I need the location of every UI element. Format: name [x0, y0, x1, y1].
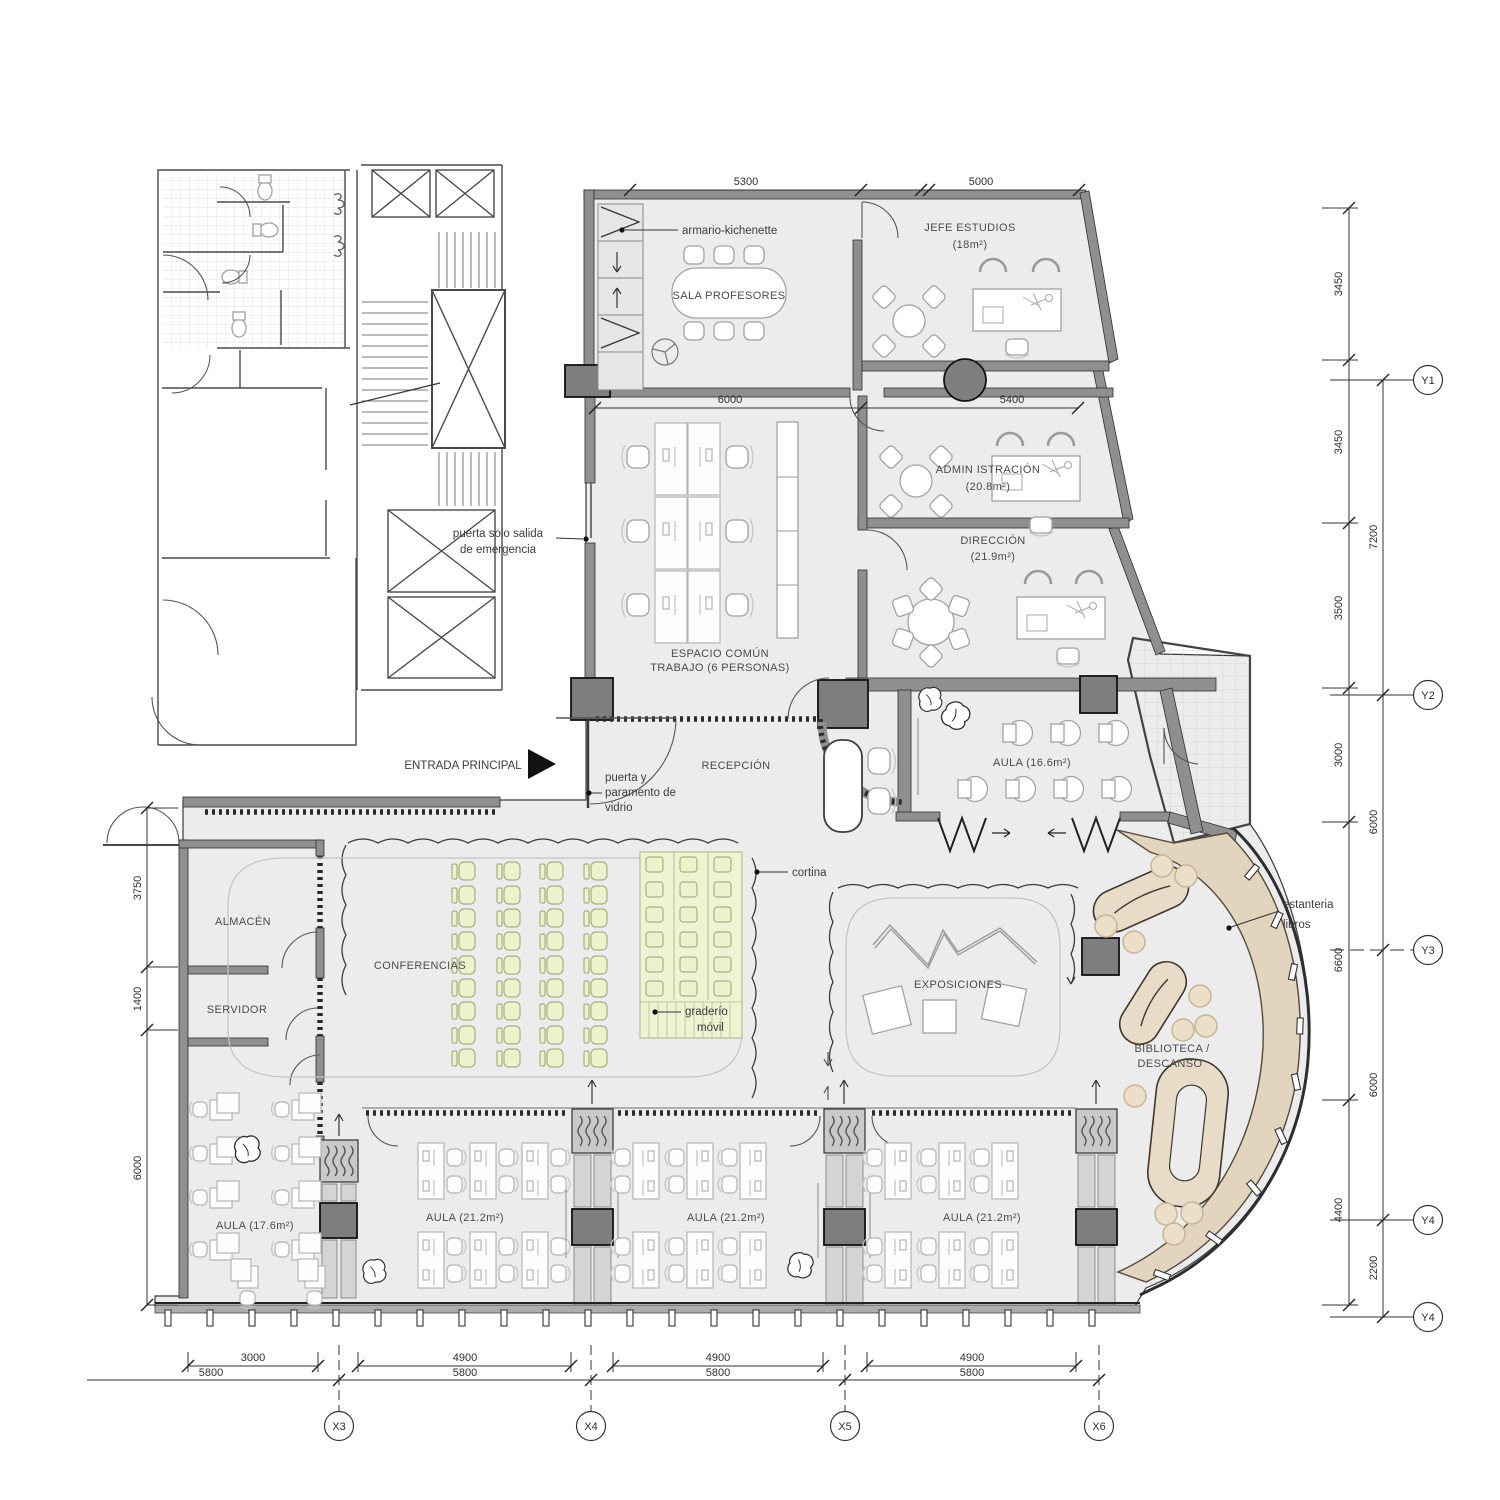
toilet-icon [253, 223, 278, 237]
label-salida-1: puerta solo salida [453, 528, 544, 540]
plant-icon [363, 1259, 386, 1283]
floor-plan: SALA PROFESORES JEFE ESTUDIOS (18m²) ADM… [0, 0, 1500, 1500]
label-aula-212-1: AULA (21.2m²) [426, 1212, 504, 1224]
grid-bubble-y1: Y1 [1421, 375, 1434, 387]
label-puerta-vidrio-3: vidrio [605, 802, 632, 814]
grid-bubble-y2: Y2 [1421, 690, 1434, 702]
dim-6000-y2y3: 6000 [1368, 810, 1380, 834]
dim-5400: 5400 [1000, 394, 1024, 406]
reception-desk [824, 740, 862, 832]
dim-4400: 4400 [1333, 1198, 1345, 1222]
dim-5000: 5000 [969, 176, 993, 188]
label-espacio-comun-2: TRABAJO (6 PERSONAS) [650, 662, 789, 674]
label-biblioteca: BIBLIOTECA / [1134, 1043, 1210, 1055]
dim-4900c: 4900 [960, 1352, 984, 1364]
grid-bubble-x3: X3 [332, 1421, 345, 1433]
dim-3450b: 3450 [1333, 430, 1345, 454]
label-biblioteca-2: DESCANSO [1138, 1058, 1203, 1070]
label-graderio-1: graderío [685, 1006, 728, 1018]
label-aula-212-3: AULA (21.2m²) [943, 1212, 1021, 1224]
grid-bubble-y3: Y3 [1421, 945, 1434, 957]
dim-5800c: 5800 [706, 1367, 730, 1379]
round-column [944, 359, 986, 401]
grid-bubble-y4b: Y4 [1421, 1312, 1434, 1324]
label-aula-212-2: AULA (21.2m²) [687, 1212, 765, 1224]
bathroom-tiles [163, 174, 345, 348]
dim-5800b: 5800 [453, 1367, 477, 1379]
label-graderio-2: móvil [697, 1022, 724, 1034]
grid-bubble-y4: Y4 [1421, 1215, 1434, 1227]
label-conferencias: CONFERENCIAS [374, 960, 466, 972]
label-direccion: DIRECCIÓN [960, 534, 1025, 547]
grid-bubble-x4: X4 [584, 1421, 597, 1433]
grid-bubble-x6: X6 [1092, 1421, 1105, 1433]
grid-bubble-x5: X5 [838, 1421, 851, 1433]
toilet-icon [222, 270, 247, 284]
dim-6000-y3y4: 6000 [1368, 1073, 1380, 1097]
label-puerta-vidrio-1: puerta y [605, 772, 647, 784]
label-estanteria-1: estanteria [1283, 899, 1334, 911]
plant-icon [235, 1136, 261, 1163]
label-aula-176: AULA (17.6m²) [216, 1220, 294, 1232]
dim-5800a: 5800 [199, 1367, 223, 1379]
label-recepcion: RECEPCIÓN [702, 759, 771, 772]
label-exposiciones: EXPOSICIONES [914, 979, 1002, 991]
dim-3500: 3500 [1333, 596, 1345, 620]
label-estanteria-2: libros [1283, 919, 1311, 931]
label-entrada-principal: ENTRADA PRINCIPAL [404, 760, 522, 772]
dim-1400: 1400 [132, 987, 144, 1011]
label-salida-2: de emergencia [460, 544, 537, 556]
label-jefe-estudios-area: (18m²) [953, 239, 988, 251]
label-administracion-area: (20.8m²) [966, 481, 1011, 493]
label-armario: armario-kichenette [682, 225, 777, 237]
label-direccion-area: (21.9m²) [971, 551, 1016, 563]
dim-3750: 3750 [132, 876, 144, 900]
dim-4900b: 4900 [706, 1352, 730, 1364]
label-espacio-comun: ESPACIO COMÚN [671, 647, 769, 660]
dim-4900a: 4900 [453, 1352, 477, 1364]
label-servidor: SERVIDOR [207, 1004, 267, 1016]
toilet-icon [232, 312, 246, 337]
dim-3000-right: 3000 [1333, 743, 1345, 767]
label-almacen: ALMACÉN [215, 915, 271, 928]
label-cortina: cortina [792, 867, 827, 879]
dim-5800d: 5800 [960, 1367, 984, 1379]
dim-6000-mid: 6000 [718, 394, 742, 406]
label-jefe-estudios: JEFE ESTUDIOS [924, 222, 1015, 234]
dim-3000-bottom: 3000 [241, 1352, 265, 1364]
shelf-cabinet [777, 422, 798, 638]
dim-5300: 5300 [734, 176, 758, 188]
label-administracion: ADMIN ISTRACIÓN [936, 463, 1040, 476]
dim-7200: 7200 [1368, 525, 1380, 549]
label-aula-166: AULA (16.6m²) [993, 757, 1071, 769]
label-sala-profesores: SALA PROFESORES [673, 290, 786, 302]
dim-6000-left: 6000 [132, 1156, 144, 1180]
dim-2200: 2200 [1368, 1256, 1380, 1280]
toilet-icon [258, 175, 272, 200]
dim-6600: 6600 [1333, 948, 1345, 972]
dim-3450a: 3450 [1333, 272, 1345, 296]
label-puerta-vidrio-2: paramento de [605, 787, 676, 799]
